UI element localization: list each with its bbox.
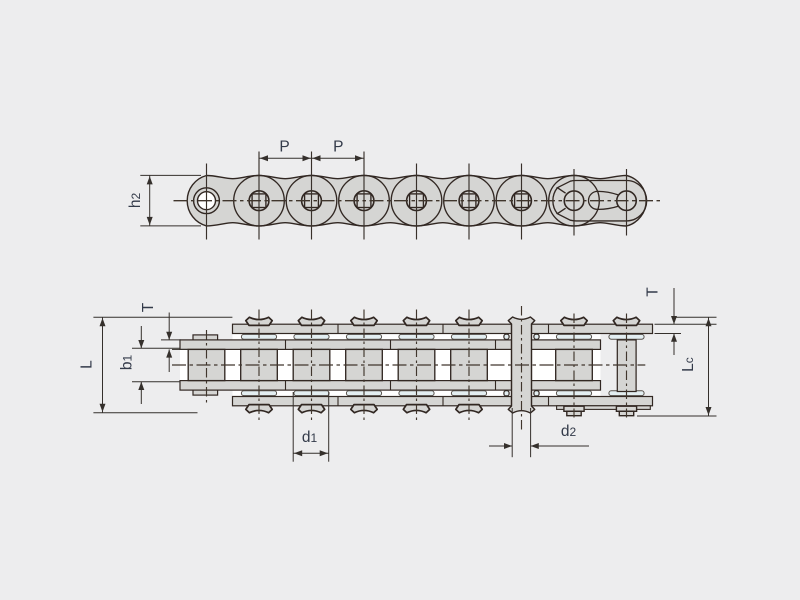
- svg-text:d1: d1: [302, 429, 318, 446]
- svg-text:Lc: Lc: [680, 357, 697, 372]
- svg-text:L: L: [79, 360, 96, 369]
- svg-text:T: T: [140, 302, 157, 312]
- svg-text:b1: b1: [119, 355, 136, 371]
- svg-text:T: T: [645, 287, 662, 297]
- svg-text:d2: d2: [561, 423, 577, 440]
- svg-text:P: P: [279, 139, 289, 156]
- svg-text:h2: h2: [127, 193, 144, 209]
- svg-text:P: P: [333, 139, 343, 156]
